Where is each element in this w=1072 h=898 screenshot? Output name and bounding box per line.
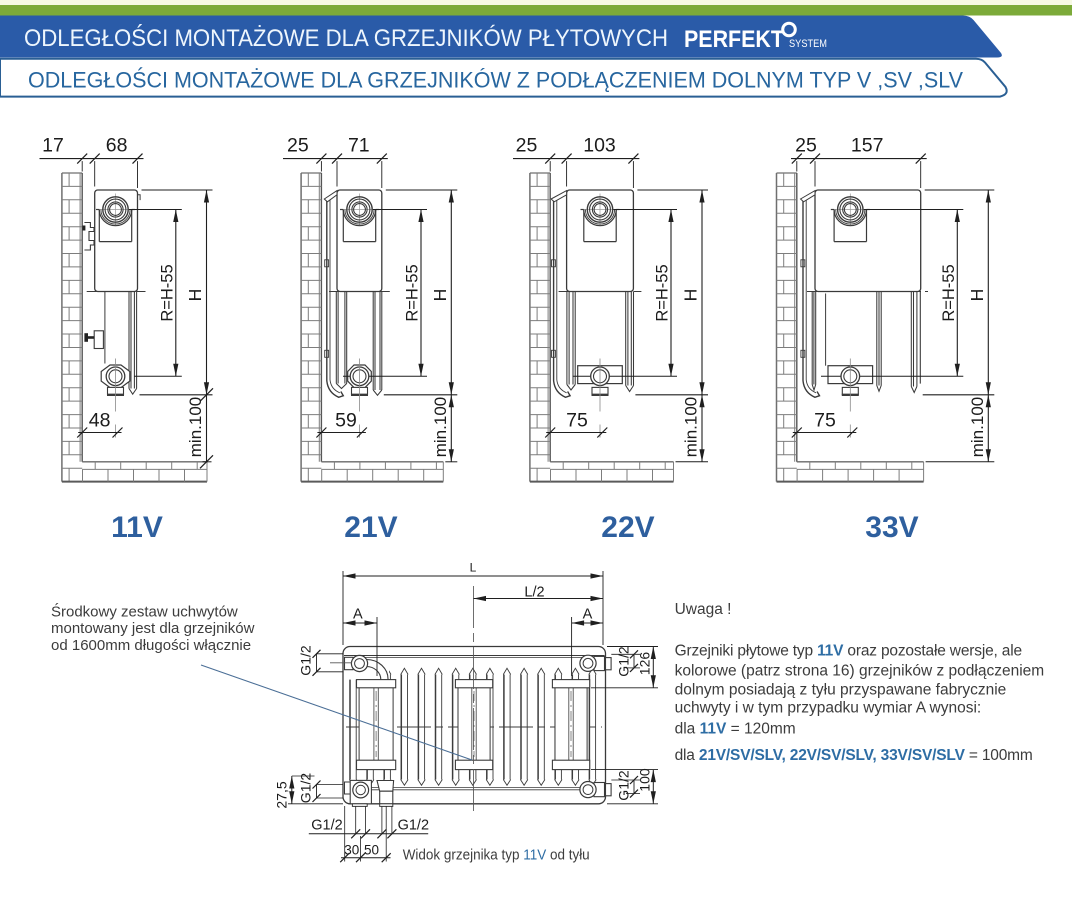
svg-text:59: 59 [335, 410, 357, 432]
svg-text:22V: 22V [601, 511, 654, 544]
svg-text:Uwaga !: Uwaga ! [675, 601, 732, 618]
svg-text:min.100: min.100 [186, 397, 205, 457]
svg-text:25: 25 [795, 135, 817, 157]
svg-text:25: 25 [287, 135, 309, 157]
svg-text:17: 17 [42, 135, 64, 157]
svg-text:G1/2: G1/2 [616, 770, 632, 801]
svg-text:dla 21V/SV/SLV, 22V/SV/SLV, 33: dla 21V/SV/SLV, 22V/SV/SLV, 33V/SV/SLV =… [675, 747, 1033, 764]
svg-text:G1/2: G1/2 [398, 818, 429, 834]
svg-text:11V: 11V [111, 511, 163, 544]
svg-text:dla 11V = 120mm: dla 11V = 120mm [675, 721, 796, 738]
svg-text:R=H-55: R=H-55 [158, 264, 176, 321]
svg-text:27,5: 27,5 [274, 781, 290, 808]
svg-text:L/2: L/2 [524, 585, 544, 601]
svg-text:R=H-55: R=H-55 [654, 264, 672, 321]
svg-text:R=H-55: R=H-55 [404, 264, 422, 321]
svg-text:Środkowy zestaw uchwytów: Środkowy zestaw uchwytów [51, 602, 238, 620]
svg-text:L: L [470, 561, 477, 575]
svg-text:A: A [583, 607, 593, 623]
svg-text:48: 48 [89, 410, 111, 432]
svg-text:kolorowe (patrz strona 16) grz: kolorowe (patrz strona 16) grzejników z … [675, 662, 1045, 679]
svg-text:ODLEGŁOŚCI MONTAŻOWE DLA GRZEJ: ODLEGŁOŚCI MONTAŻOWE DLA GRZEJNIKÓW Z PO… [28, 68, 963, 93]
svg-text:H: H [185, 289, 205, 302]
svg-text:SYSTEM: SYSTEM [789, 38, 827, 50]
svg-text:G1/2: G1/2 [311, 818, 342, 834]
svg-text:R=H-55: R=H-55 [940, 264, 958, 321]
svg-text:od 1600mm długości włącznie: od 1600mm długości włącznie [51, 637, 251, 654]
svg-text:H: H [967, 289, 987, 302]
svg-text:Grzejniki płytowe typ 11V oraz: Grzejniki płytowe typ 11V oraz pozostałe… [675, 642, 1022, 659]
svg-text:PERFEKT: PERFEKT [684, 26, 784, 53]
svg-text:dolnym posiadają z tyłu przysp: dolnym posiadają z tyłu przyspawane fabr… [675, 682, 1007, 699]
svg-text:A: A [353, 607, 363, 623]
svg-text:H: H [681, 289, 701, 302]
svg-text:ODLEGŁOŚCI MONTAŻOWE DLA GR: ODLEGŁOŚCI MONTAŻOWE DLA GRZEJNIKÓW PŁYT… [24, 24, 668, 52]
svg-text:126: 126 [637, 652, 653, 676]
svg-text:21V: 21V [344, 511, 397, 544]
svg-text:157: 157 [851, 135, 884, 157]
svg-text:min.100: min.100 [682, 397, 701, 457]
svg-text:75: 75 [566, 410, 588, 432]
svg-text:min.100: min.100 [431, 397, 450, 457]
svg-text:uchwyty i w tym przypadku wymi: uchwyty i w tym przypadku wymiar A wynos… [675, 700, 982, 717]
svg-text:75: 75 [814, 410, 836, 432]
svg-text:H: H [430, 289, 450, 302]
svg-text:71: 71 [348, 135, 370, 157]
svg-text:50: 50 [364, 843, 379, 858]
svg-text:100: 100 [637, 768, 653, 792]
svg-text:Widok grzejnika typ 11V od tył: Widok grzejnika typ 11V od tyłu [403, 847, 590, 864]
svg-text:G1/2: G1/2 [616, 646, 632, 677]
svg-text:33V: 33V [865, 511, 918, 544]
svg-text:25: 25 [516, 135, 538, 157]
svg-text:G1/2: G1/2 [298, 773, 314, 804]
svg-text:68: 68 [106, 135, 128, 157]
svg-text:G1/2: G1/2 [298, 645, 314, 676]
svg-text:montowany jest dla grzejników: montowany jest dla grzejników [51, 620, 255, 637]
svg-text:30: 30 [344, 843, 359, 858]
svg-text:min.100: min.100 [968, 397, 987, 457]
svg-text:103: 103 [583, 135, 616, 157]
